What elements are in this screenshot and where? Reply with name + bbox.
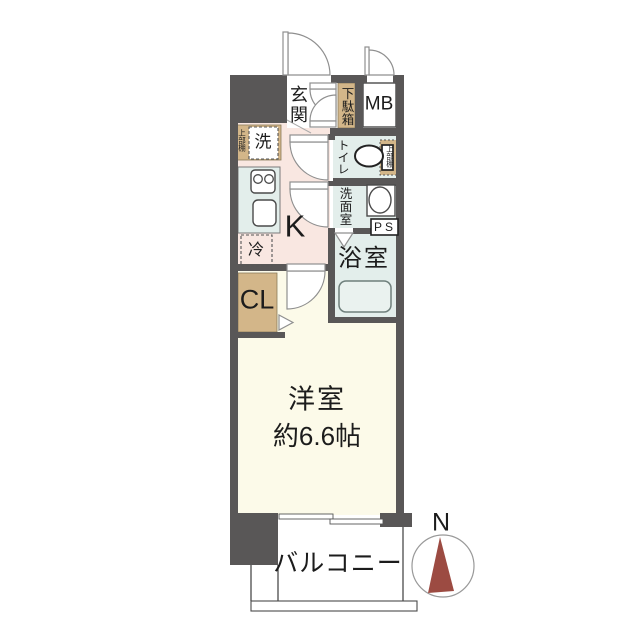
label-toilet: トイレ [337,139,349,175]
wall-toilet-left-c [328,228,335,323]
wall-under-entry-row [330,128,404,136]
label-genkan: 玄関 [289,85,307,125]
entrance-door-leaf [283,32,288,75]
floor-plan-page: 玄関 下駄箱 MB 上部棚 洗 トイレ 上部棚 洗面室 PS 浴室 K 冷 CL… [0,0,640,640]
wall-bathroom-bottom [328,317,404,323]
toilet-bowl-icon [355,146,383,167]
balcony-window-icon [279,514,383,524]
wall-top-left-block [230,75,287,123]
label-fridge: 冷 [248,243,264,259]
wall-left [230,123,238,515]
label-meter-box: MB [365,95,394,114]
label-main-room-size: 約6.6帖 [273,423,361,449]
mb-door-leaf [365,47,369,75]
label-washroom: 洗面室 [338,187,351,226]
wall-kitchen-room-left [238,264,287,271]
wall-shoe-mb-divider [355,83,363,128]
floor-plan-drawing [0,0,640,640]
label-upper-shelf-toilet: 上部棚 [386,145,394,168]
entrance-door-arc [288,33,330,75]
label-kitchen: K [285,211,306,242]
label-upper-shelf-entry: 上部棚 [238,129,246,152]
wall-kitchen-room-right [325,264,335,271]
wall-toilet-left-a [328,134,335,140]
wall-closet-bottom [230,332,285,338]
wall-bottom-left-block [230,513,278,565]
label-balcony: バルコニー [273,552,403,577]
label-bathroom: 浴室 [338,247,390,271]
label-pipe-space: PS [374,221,396,233]
label-shoe-cabinet: 下駄箱 [340,87,353,126]
washroom-door-leaf [290,182,328,189]
label-main-room: 洋室 [288,387,346,414]
compass-icon [412,535,474,597]
label-washer: 洗 [255,134,272,151]
wall-right [396,83,404,513]
wall-bottom-right-block [380,513,412,527]
toilet-door-leaf [290,135,328,142]
room-door-leaf [287,264,325,271]
mb-door-arc [369,50,394,75]
wall-top-right [393,75,404,83]
sink-icon [253,200,276,226]
bathtub-icon [339,281,391,312]
label-closet: CL [240,287,275,314]
wall-top-mid [331,75,367,83]
label-compass-north: N [432,511,450,536]
